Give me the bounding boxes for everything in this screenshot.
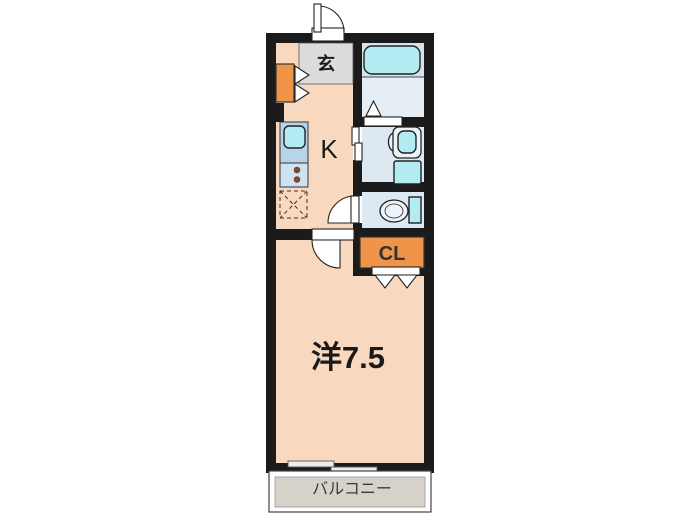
closet-label: CL: [379, 243, 406, 265]
entrance-door-leaf: [314, 4, 321, 32]
kitchen-sink: [284, 126, 305, 148]
entrance-label: 玄: [317, 53, 335, 74]
room-door-threshold: [312, 229, 354, 240]
stove-burner-1: [294, 167, 301, 174]
kitchen-label: K: [320, 134, 338, 164]
washing-machine: [394, 161, 421, 184]
toilet-door-leaf: [351, 196, 359, 223]
wall-toilet-closet: [353, 228, 434, 237]
window-sash-1: [288, 461, 334, 467]
wall-left: [266, 33, 276, 473]
shoe-cabinet: [276, 64, 294, 102]
closet-door-threshold: [372, 267, 420, 275]
wall-top: [266, 33, 434, 43]
western-room-label: 洋7.5: [311, 340, 385, 375]
stove-burner-2: [294, 176, 301, 183]
washroom-sliding-door: [352, 127, 362, 161]
toilet-tank: [409, 197, 421, 223]
wall-kitchen-room: [266, 229, 314, 240]
bathtub: [364, 46, 420, 74]
toilet-bowl: [380, 200, 408, 222]
bath-door-panel: [364, 117, 402, 126]
washbasin-bowl: [398, 131, 416, 153]
sliding-door-panel-1: [352, 127, 359, 145]
balcony-label: バルコニー: [312, 481, 392, 498]
entrance-door: [312, 4, 344, 41]
floor-plan: 玄 K: [0, 0, 700, 525]
wall-center-upper: [353, 43, 362, 127]
wall-washroom-toilet: [353, 182, 434, 192]
gas-stove: [280, 163, 308, 187]
sliding-door-panel-2: [355, 143, 362, 161]
balcony: バルコニー: [269, 471, 431, 512]
wall-counter-stub: [266, 103, 284, 122]
wall-right: [424, 33, 434, 473]
washbasin: [389, 127, 422, 158]
